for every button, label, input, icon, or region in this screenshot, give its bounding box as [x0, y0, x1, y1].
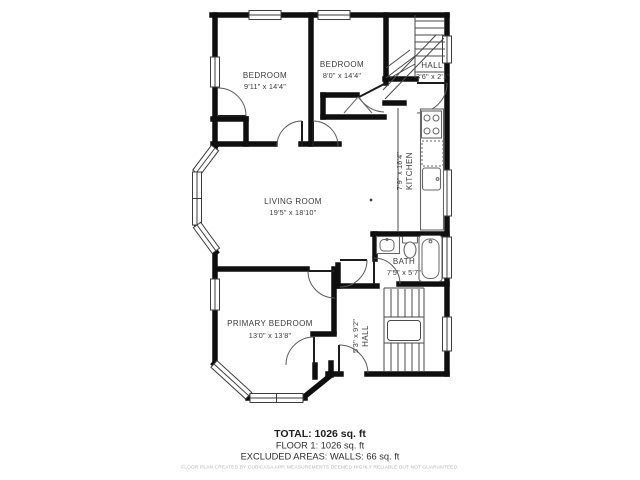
room-label-bedroom-1: BEDROOM — [243, 71, 287, 80]
floor-plan-canvas: BEDROOM 9'11" x 14'4" BEDROOM 8'0" x 14'… — [0, 0, 640, 480]
vanity-icon — [377, 237, 400, 254]
window — [211, 361, 252, 399]
alcove-chevron — [344, 97, 372, 113]
total-area-text: TOTAL: 1026 sq. ft — [274, 428, 366, 440]
room-dims-bath: 7'5" x 5'7" — [387, 268, 421, 277]
window — [443, 237, 452, 278]
area-summary: TOTAL: 1026 sq. ft FLOOR 1: 1026 sq. ft … — [181, 428, 458, 471]
window — [193, 145, 219, 175]
room-label-hall-upper: HALL — [421, 61, 443, 70]
room-labels: BEDROOM 9'11" x 14'4" BEDROOM 8'0" x 14'… — [227, 60, 450, 353]
floor-area-text: FLOOR 1: 1026 sq. ft — [276, 441, 365, 451]
staircase-lower — [384, 288, 424, 371]
door-bedroom1 — [218, 88, 246, 116]
room-dims-primary-bedroom: 13'0" x 13'8" — [249, 331, 292, 340]
window — [211, 279, 220, 310]
room-label-living-room: LIVING ROOM — [264, 197, 322, 206]
room-dims-hall-upper: 3'6" x 2'1" — [416, 72, 450, 81]
bathtub-icon — [419, 236, 442, 282]
door-primary-closet — [286, 337, 314, 365]
door-primary-entry — [308, 271, 335, 298]
window — [249, 11, 281, 20]
disclaimer-text: FLOOR PLAN CREATED BY CUBICASA APP. MEAS… — [181, 465, 458, 471]
window — [250, 394, 303, 403]
windows — [193, 11, 452, 403]
excluded-area-text: EXCLUDED AREAS: WALLS: 66 sq. ft — [241, 452, 400, 462]
window — [443, 317, 452, 351]
room-label-bath: BATH — [393, 257, 415, 266]
staircase-upper — [383, 15, 445, 99]
door-living-hall — [340, 260, 367, 287]
window — [193, 222, 219, 253]
room-label-kitchen: KITCHEN — [405, 152, 414, 190]
room-dims-kitchen: 7'9" x 16'4" — [395, 152, 404, 191]
sink-icon — [423, 168, 441, 190]
room-label-primary-bedroom: PRIMARY BEDROOM — [227, 319, 313, 328]
room-label-bedroom-2: BEDROOM — [320, 60, 364, 69]
room-dims-bedroom-1: 9'11" x 14'4" — [244, 82, 286, 91]
room-label-hall-lower: HALL — [361, 325, 370, 347]
door-bedroom2-angled — [359, 83, 386, 112]
stove-icon — [422, 111, 442, 138]
window — [193, 172, 202, 225]
ceiling-point — [370, 199, 373, 202]
room-dims-hall-lower: 5'3" x 9'2" — [351, 319, 360, 353]
kitchen-fixtures — [421, 109, 444, 230]
window — [318, 11, 350, 20]
room-dims-bedroom-2: 8'0" x 14'4" — [323, 71, 362, 80]
toilet-icon — [403, 237, 418, 259]
stair-landing — [388, 321, 421, 341]
room-dims-living-room: 19'5" x 18'10" — [270, 208, 317, 217]
window — [211, 57, 220, 87]
